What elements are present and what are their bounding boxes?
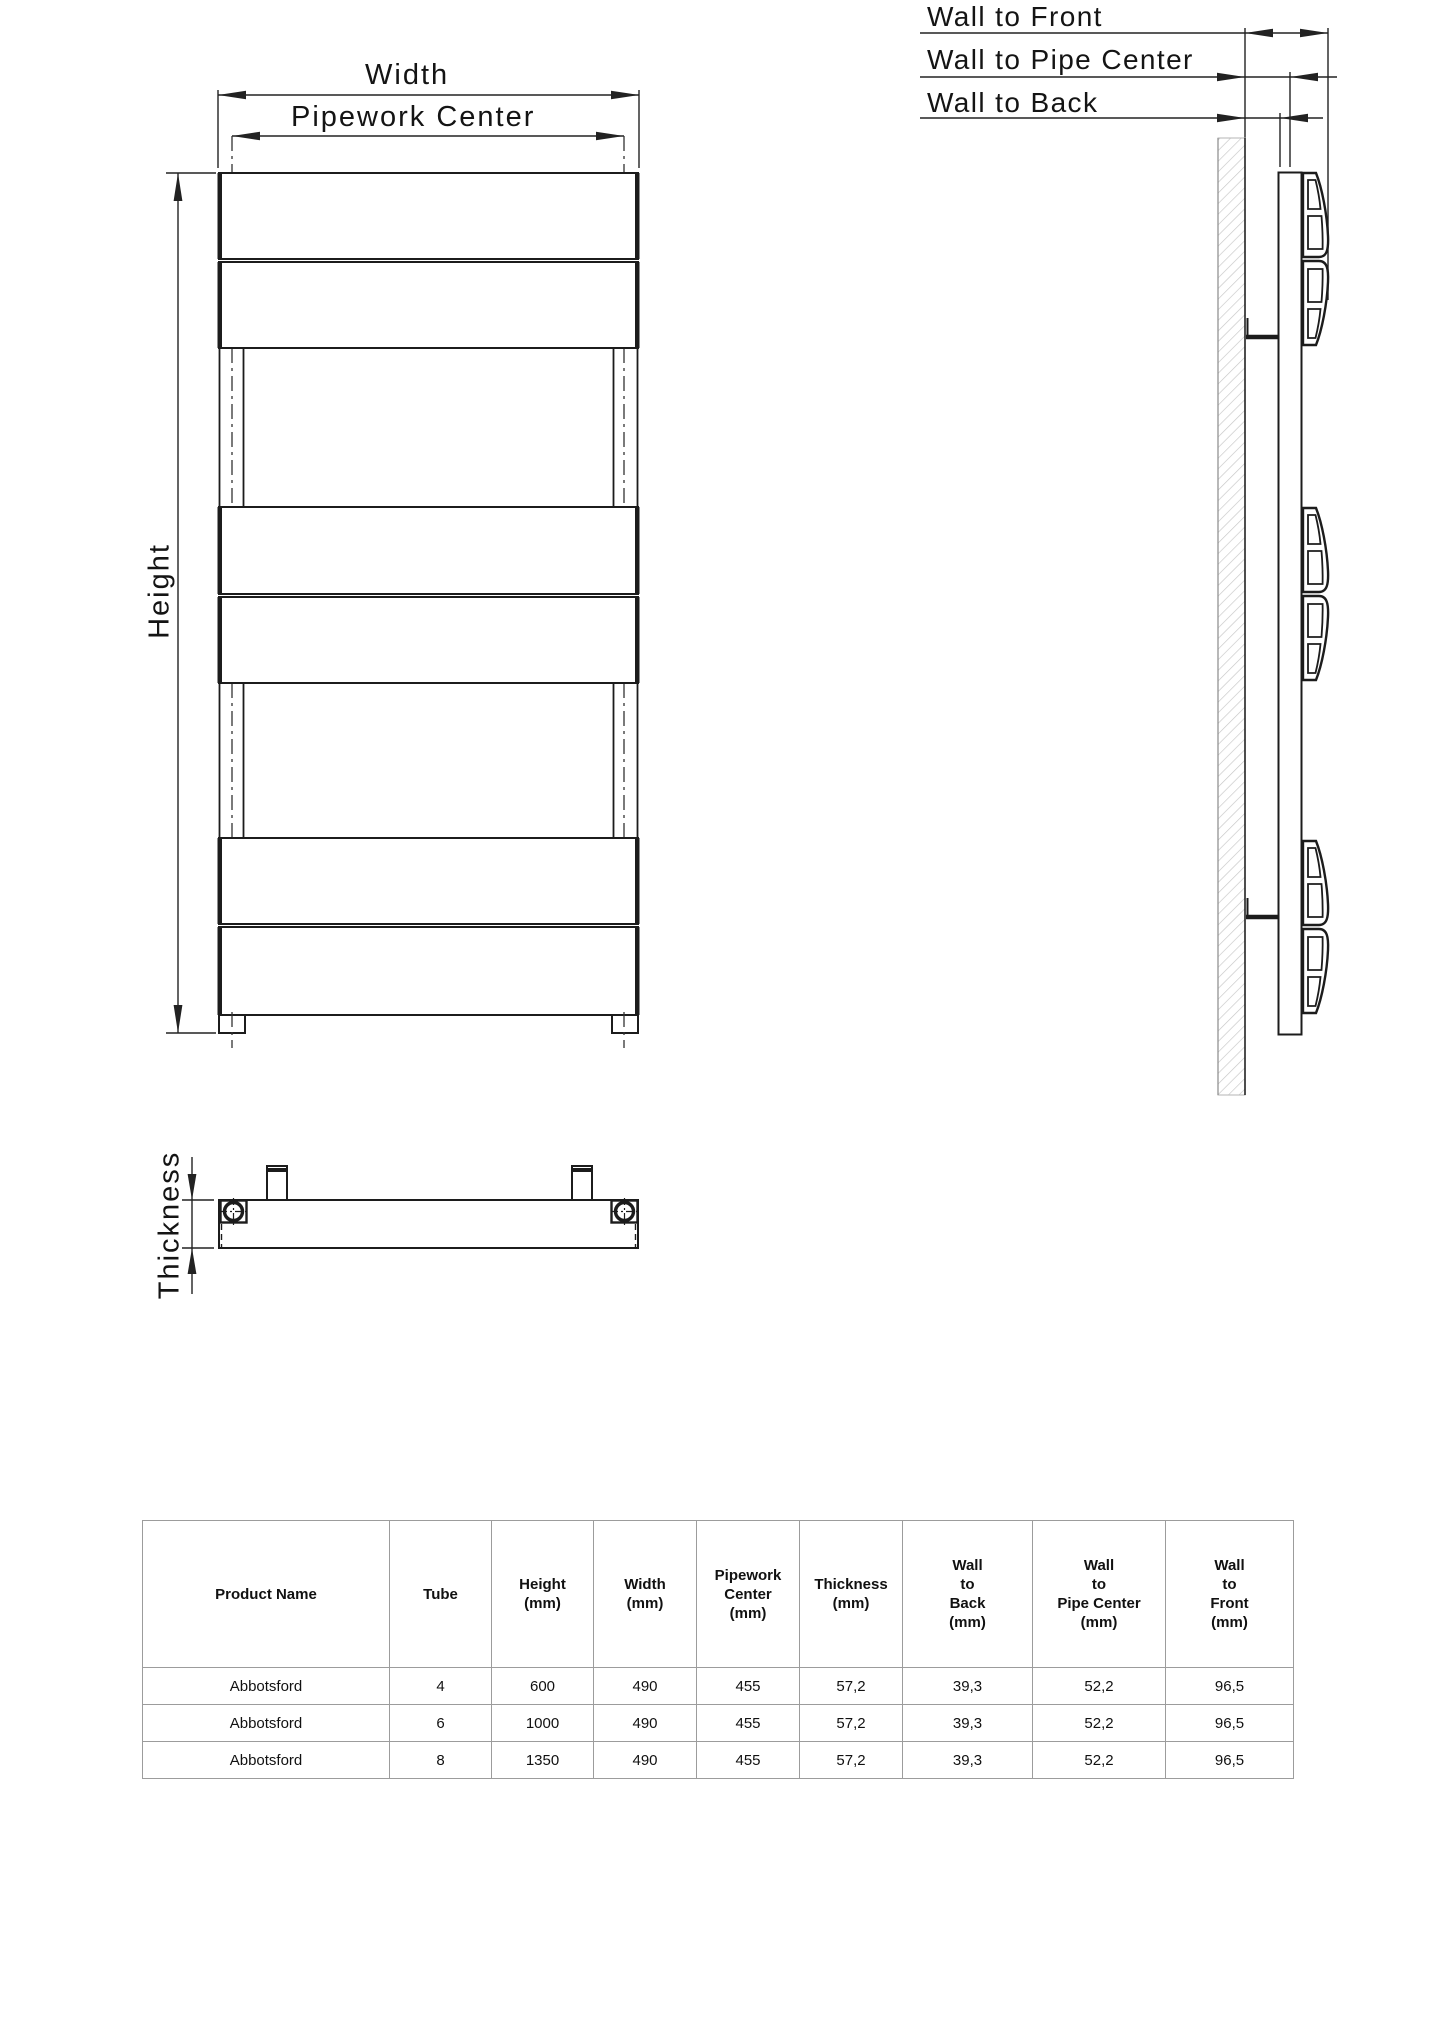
cell-pipework-center: 455	[697, 1668, 800, 1705]
thickness-dimension-label: Thickness	[154, 1151, 187, 1300]
header-wall-to-front: Wall to Front (mm)	[1166, 1521, 1294, 1668]
cell-tube: 8	[390, 1742, 492, 1779]
table-row: Abbotsford 8 1350 490 455 57,2 39,3 52,2…	[143, 1742, 1294, 1779]
cell-width: 490	[594, 1668, 697, 1705]
cell-wall-to-back: 39,3	[903, 1705, 1033, 1742]
header-width: Width (mm)	[594, 1521, 697, 1668]
cell-wall-to-back: 39,3	[903, 1742, 1033, 1779]
bracket-tabs	[266, 1166, 593, 1200]
cell-wall-to-pipe-center: 52,2	[1033, 1742, 1166, 1779]
cell-width: 490	[594, 1705, 697, 1742]
wall-section	[1218, 138, 1245, 1095]
cell-wall-to-front: 96,5	[1166, 1705, 1294, 1742]
table-row: Abbotsford 4 600 490 455 57,2 39,3 52,2 …	[143, 1668, 1294, 1705]
wall-brackets	[1246, 318, 1278, 917]
wall-to-back-label: Wall to Back	[927, 87, 1098, 119]
header-tube: Tube	[390, 1521, 492, 1668]
cell-height: 1000	[492, 1705, 594, 1742]
header-thickness: Thickness (mm)	[800, 1521, 903, 1668]
table-row: Abbotsford 6 1000 490 455 57,2 39,3 52,2…	[143, 1705, 1294, 1742]
panel-profiles	[1303, 173, 1328, 1013]
cell-wall-to-back: 39,3	[903, 1668, 1033, 1705]
header-height: Height (mm)	[492, 1521, 594, 1668]
radiator-feet	[219, 1015, 638, 1033]
cell-product-name: Abbotsford	[143, 1742, 390, 1779]
thickness-dimension	[182, 1157, 214, 1294]
height-dimension-label: Height	[144, 543, 177, 639]
cell-tube: 4	[390, 1668, 492, 1705]
cell-wall-to-pipe-center: 52,2	[1033, 1705, 1166, 1742]
side-view	[920, 28, 1337, 1095]
cell-wall-to-pipe-center: 52,2	[1033, 1668, 1166, 1705]
header-wall-to-back: Wall to Back (mm)	[903, 1521, 1033, 1668]
width-dimension-label: Width	[365, 59, 449, 92]
spec-table-header-row: Product Name Tube Height (mm) Width (mm)…	[143, 1521, 1294, 1668]
cell-pipework-center: 455	[697, 1742, 800, 1779]
front-view	[166, 90, 640, 1048]
pipework-center-dimension-label: Pipework Center	[291, 101, 535, 134]
bottom-rail	[219, 1200, 638, 1248]
header-pipework-center: Pipework Center (mm)	[697, 1521, 800, 1668]
wall-to-front-label: Wall to Front	[927, 1, 1103, 33]
wall-to-pipe-center-label: Wall to Pipe Center	[927, 44, 1194, 76]
header-wall-to-pipe-center: Wall to Pipe Center (mm)	[1033, 1521, 1166, 1668]
cell-width: 490	[594, 1742, 697, 1779]
cell-pipework-center: 455	[697, 1705, 800, 1742]
cell-thickness: 57,2	[800, 1742, 903, 1779]
cell-thickness: 57,2	[800, 1668, 903, 1705]
cell-tube: 6	[390, 1705, 492, 1742]
radiator-panels	[219, 173, 638, 1015]
cell-thickness: 57,2	[800, 1705, 903, 1742]
header-product-name: Product Name	[143, 1521, 390, 1668]
cell-product-name: Abbotsford	[143, 1668, 390, 1705]
radiator-dimension-sheet: Width Pipework Center Height Thickness W…	[0, 0, 1445, 2044]
foot-centre-stubs	[232, 1012, 624, 1048]
cell-wall-to-front: 96,5	[1166, 1742, 1294, 1779]
cell-height: 600	[492, 1668, 594, 1705]
cell-height: 1350	[492, 1742, 594, 1779]
spec-table: Product Name Tube Height (mm) Width (mm)…	[142, 1520, 1294, 1779]
side-tube-profile	[1279, 173, 1302, 1035]
cell-wall-to-front: 96,5	[1166, 1668, 1294, 1705]
plan-view	[182, 1157, 638, 1294]
cell-product-name: Abbotsford	[143, 1705, 390, 1742]
